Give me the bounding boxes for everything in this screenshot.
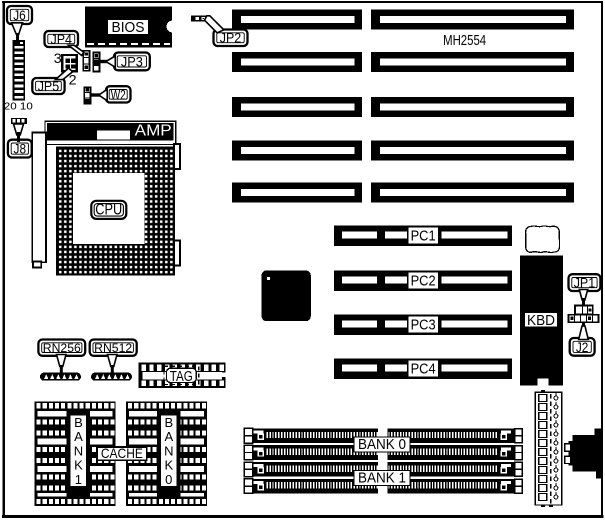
svg-text:BANK 0: BANK 0 [358, 436, 406, 453]
svg-text:J2: J2 [576, 339, 589, 355]
svg-text:AMP: AMP [135, 122, 172, 139]
svg-text:JP3: JP3 [121, 53, 143, 69]
svg-text:KBD: KBD [527, 312, 555, 329]
svg-text:BIOS: BIOS [112, 19, 145, 36]
svg-text:CACHE: CACHE [101, 445, 143, 461]
svg-text:B: B [74, 415, 83, 430]
svg-text:N: N [74, 443, 83, 458]
svg-text:CPU: CPU [95, 201, 122, 218]
svg-text:TAG: TAG [170, 368, 193, 385]
svg-text:PC4: PC4 [411, 361, 436, 378]
svg-text:BANK 1: BANK 1 [358, 469, 406, 486]
svg-text:B: B [164, 415, 173, 430]
svg-text:A: A [74, 429, 83, 444]
svg-text:A: A [164, 429, 173, 444]
svg-text:PC3: PC3 [411, 317, 436, 334]
svg-text:K: K [74, 458, 83, 473]
svg-text:J6: J6 [13, 7, 26, 23]
svg-text:N: N [164, 443, 173, 458]
svg-text:2: 2 [69, 72, 77, 88]
svg-text:RN512: RN512 [94, 343, 132, 355]
svg-text:0: 0 [165, 472, 172, 487]
svg-text:JP1: JP1 [574, 275, 596, 290]
svg-text:20 10: 20 10 [4, 101, 33, 113]
svg-text:K: K [164, 458, 173, 473]
svg-text:MH2554: MH2554 [443, 32, 486, 49]
svg-text:W2: W2 [111, 86, 126, 102]
svg-text:3: 3 [54, 50, 62, 66]
svg-text:JP2: JP2 [220, 31, 242, 46]
svg-text:PC1: PC1 [411, 228, 436, 245]
svg-text:J8: J8 [14, 141, 27, 157]
svg-text:JP5: JP5 [38, 79, 60, 94]
svg-text:1: 1 [75, 472, 82, 487]
svg-text:PC2: PC2 [411, 273, 436, 290]
svg-text:RN256: RN256 [43, 343, 81, 355]
